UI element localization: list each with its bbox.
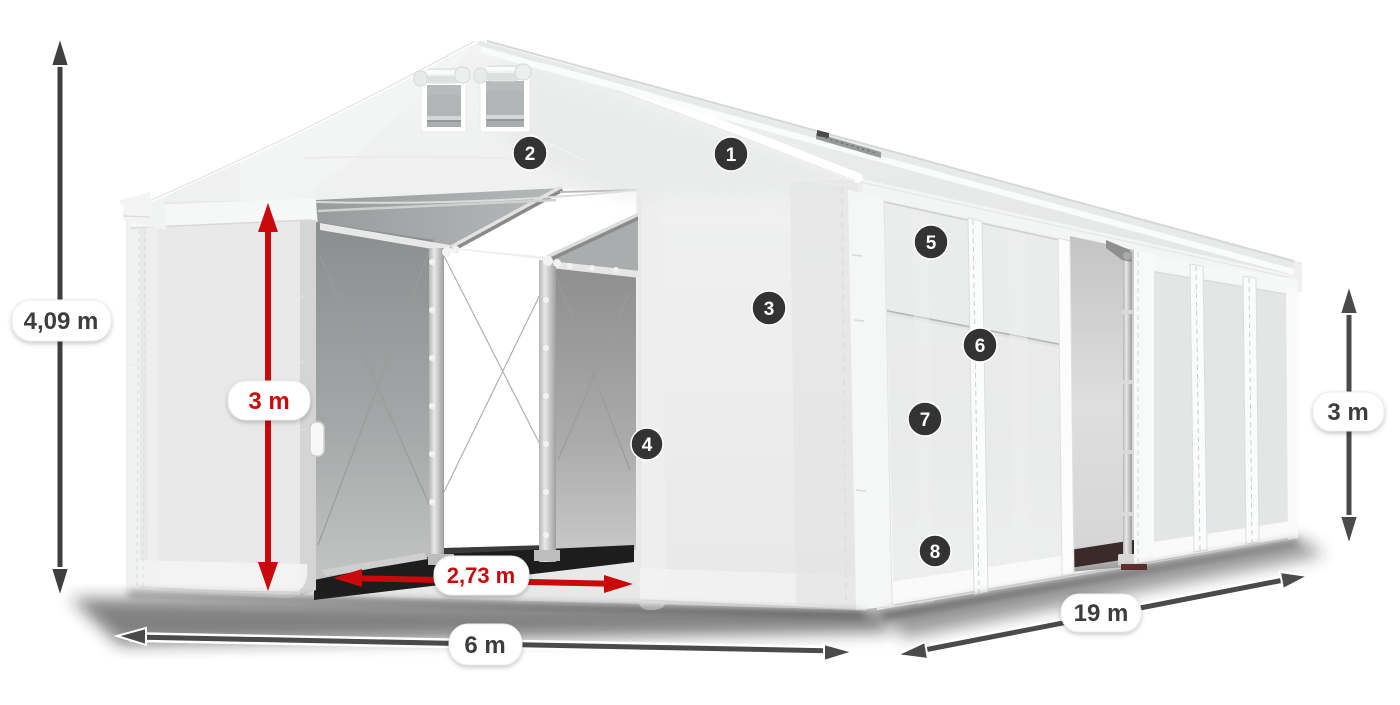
svg-text:6: 6 bbox=[975, 336, 986, 357]
svg-text:1: 1 bbox=[726, 145, 737, 166]
svg-text:2: 2 bbox=[525, 144, 536, 165]
svg-text:3 m: 3 m bbox=[248, 388, 289, 415]
svg-text:3 m: 3 m bbox=[1327, 399, 1368, 426]
svg-text:2,73 m: 2,73 m bbox=[447, 563, 516, 588]
svg-text:8: 8 bbox=[930, 542, 941, 563]
svg-text:7: 7 bbox=[920, 410, 931, 431]
svg-text:4,09 m: 4,09 m bbox=[24, 308, 99, 335]
svg-text:6 m: 6 m bbox=[464, 632, 505, 659]
svg-text:3: 3 bbox=[764, 299, 775, 320]
svg-text:4: 4 bbox=[642, 435, 653, 456]
svg-text:19 m: 19 m bbox=[1074, 600, 1129, 627]
svg-text:5: 5 bbox=[926, 233, 937, 254]
